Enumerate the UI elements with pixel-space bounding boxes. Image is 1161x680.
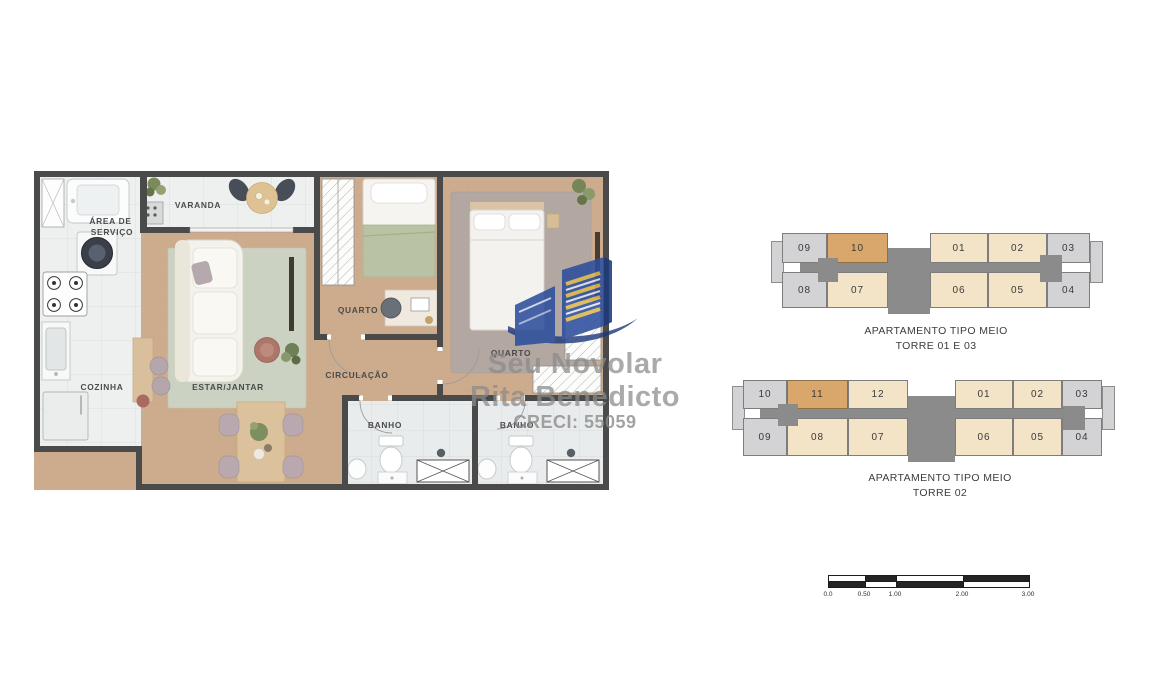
scale-segment	[896, 576, 963, 581]
dining-chair	[219, 414, 239, 436]
pouf	[152, 377, 170, 395]
decor-ball	[425, 316, 433, 324]
room-label-estar-jantar: ESTAR/JANTAR	[192, 382, 264, 392]
keyplan-title-torre-01-03: APARTAMENTO TIPO MEIO TORRE 01 E 03	[782, 324, 1090, 354]
scale-label: 3.00	[1022, 591, 1035, 598]
pillow	[371, 183, 427, 203]
unit-01: 01	[955, 380, 1013, 409]
scale-segment	[896, 582, 963, 587]
keyplan-title-line: TORRE 01 E 03	[782, 339, 1090, 354]
keyplan-title-line: APARTAMENTO TIPO MEIO	[760, 471, 1120, 486]
decor-tray	[137, 395, 150, 408]
scale-segment	[963, 582, 1029, 587]
dining-chair	[283, 456, 303, 478]
unit-12: 12	[848, 380, 908, 409]
dining-chair	[283, 414, 303, 436]
elevator-core	[908, 396, 955, 462]
scale-label: 0.0	[823, 591, 832, 598]
unit-03: 03	[1062, 380, 1102, 409]
sliding-door	[190, 228, 293, 232]
room-label-varanda: VARANDA	[175, 200, 221, 210]
room-label-circulacao: CIRCULAÇÃO	[325, 370, 388, 380]
unit-05: 05	[1013, 418, 1062, 456]
dining-table	[237, 402, 285, 482]
corridor-block	[1040, 255, 1062, 282]
scale-segment	[829, 576, 865, 581]
tv-panel	[595, 232, 600, 298]
shower-head	[567, 449, 575, 457]
pillow	[509, 214, 540, 230]
toilet	[380, 447, 402, 473]
scale-bar: 0.00.501.002.003.00	[828, 575, 1029, 601]
elevator-core	[888, 248, 930, 314]
keyplan-title-line: TORRE 02	[760, 486, 1120, 501]
keyplan-torre-01-03: 09100102030807060504	[782, 233, 1090, 308]
room-label-banho-1: BANHO	[368, 420, 402, 430]
toilet-tank	[379, 436, 403, 446]
corridor-block	[778, 404, 798, 426]
scale-segment	[829, 582, 865, 587]
corridor	[800, 263, 1062, 272]
unit-06: 06	[955, 418, 1013, 456]
room-label-cozinha: COZINHA	[80, 382, 123, 392]
tv-panel	[289, 257, 294, 331]
unit-01: 01	[930, 233, 988, 263]
scale-segment	[865, 582, 896, 587]
keyplan-title-line: APARTAMENTO TIPO MEIO	[782, 324, 1090, 339]
pouf	[150, 357, 168, 375]
apartment-floorplan: ÁREA DE SERVIÇO VARANDA COZINHA ESTAR/JA…	[33, 170, 610, 492]
unit-07: 07	[848, 418, 908, 456]
unit-02: 02	[988, 233, 1047, 263]
building-notch	[1090, 241, 1103, 283]
scale-label: 1.00	[889, 591, 902, 598]
laptop	[411, 298, 429, 311]
dining-chair	[219, 456, 239, 478]
building-notch	[1102, 386, 1115, 430]
room-label-quarto-1: QUARTO	[338, 305, 378, 315]
room-label-quarto-2: QUARTO	[491, 348, 531, 358]
bathroom-sink	[478, 459, 496, 479]
floorplan-marketing-image: ÁREA DE SERVIÇO VARANDA COZINHA ESTAR/JA…	[0, 0, 1161, 680]
shower-head	[437, 449, 445, 457]
unit-05: 05	[988, 272, 1047, 308]
pillow	[474, 214, 505, 230]
room-label-banho-2: BANHO	[500, 420, 534, 430]
unit-02: 02	[1013, 380, 1062, 409]
nightstand	[547, 214, 559, 228]
bathroom-sink	[348, 459, 366, 479]
scale-label: 0.50	[858, 591, 871, 598]
toilet	[510, 447, 532, 473]
toilet-tank	[509, 436, 533, 446]
desk-chair	[381, 298, 401, 318]
side-console	[133, 338, 153, 402]
scale-bar-segments	[828, 575, 1030, 588]
scale-segment	[963, 576, 1029, 581]
scale-label: 2.00	[956, 591, 969, 598]
corridor-block	[818, 258, 838, 282]
unit-06: 06	[930, 272, 988, 308]
headboard	[470, 202, 544, 210]
scale-segment	[865, 576, 896, 581]
corridor-block	[1063, 406, 1085, 430]
keyplan-torre-02: 101112010203090807060504	[743, 380, 1102, 456]
keyplan-title-torre-02: APARTAMENTO TIPO MEIO TORRE 02	[760, 471, 1120, 501]
